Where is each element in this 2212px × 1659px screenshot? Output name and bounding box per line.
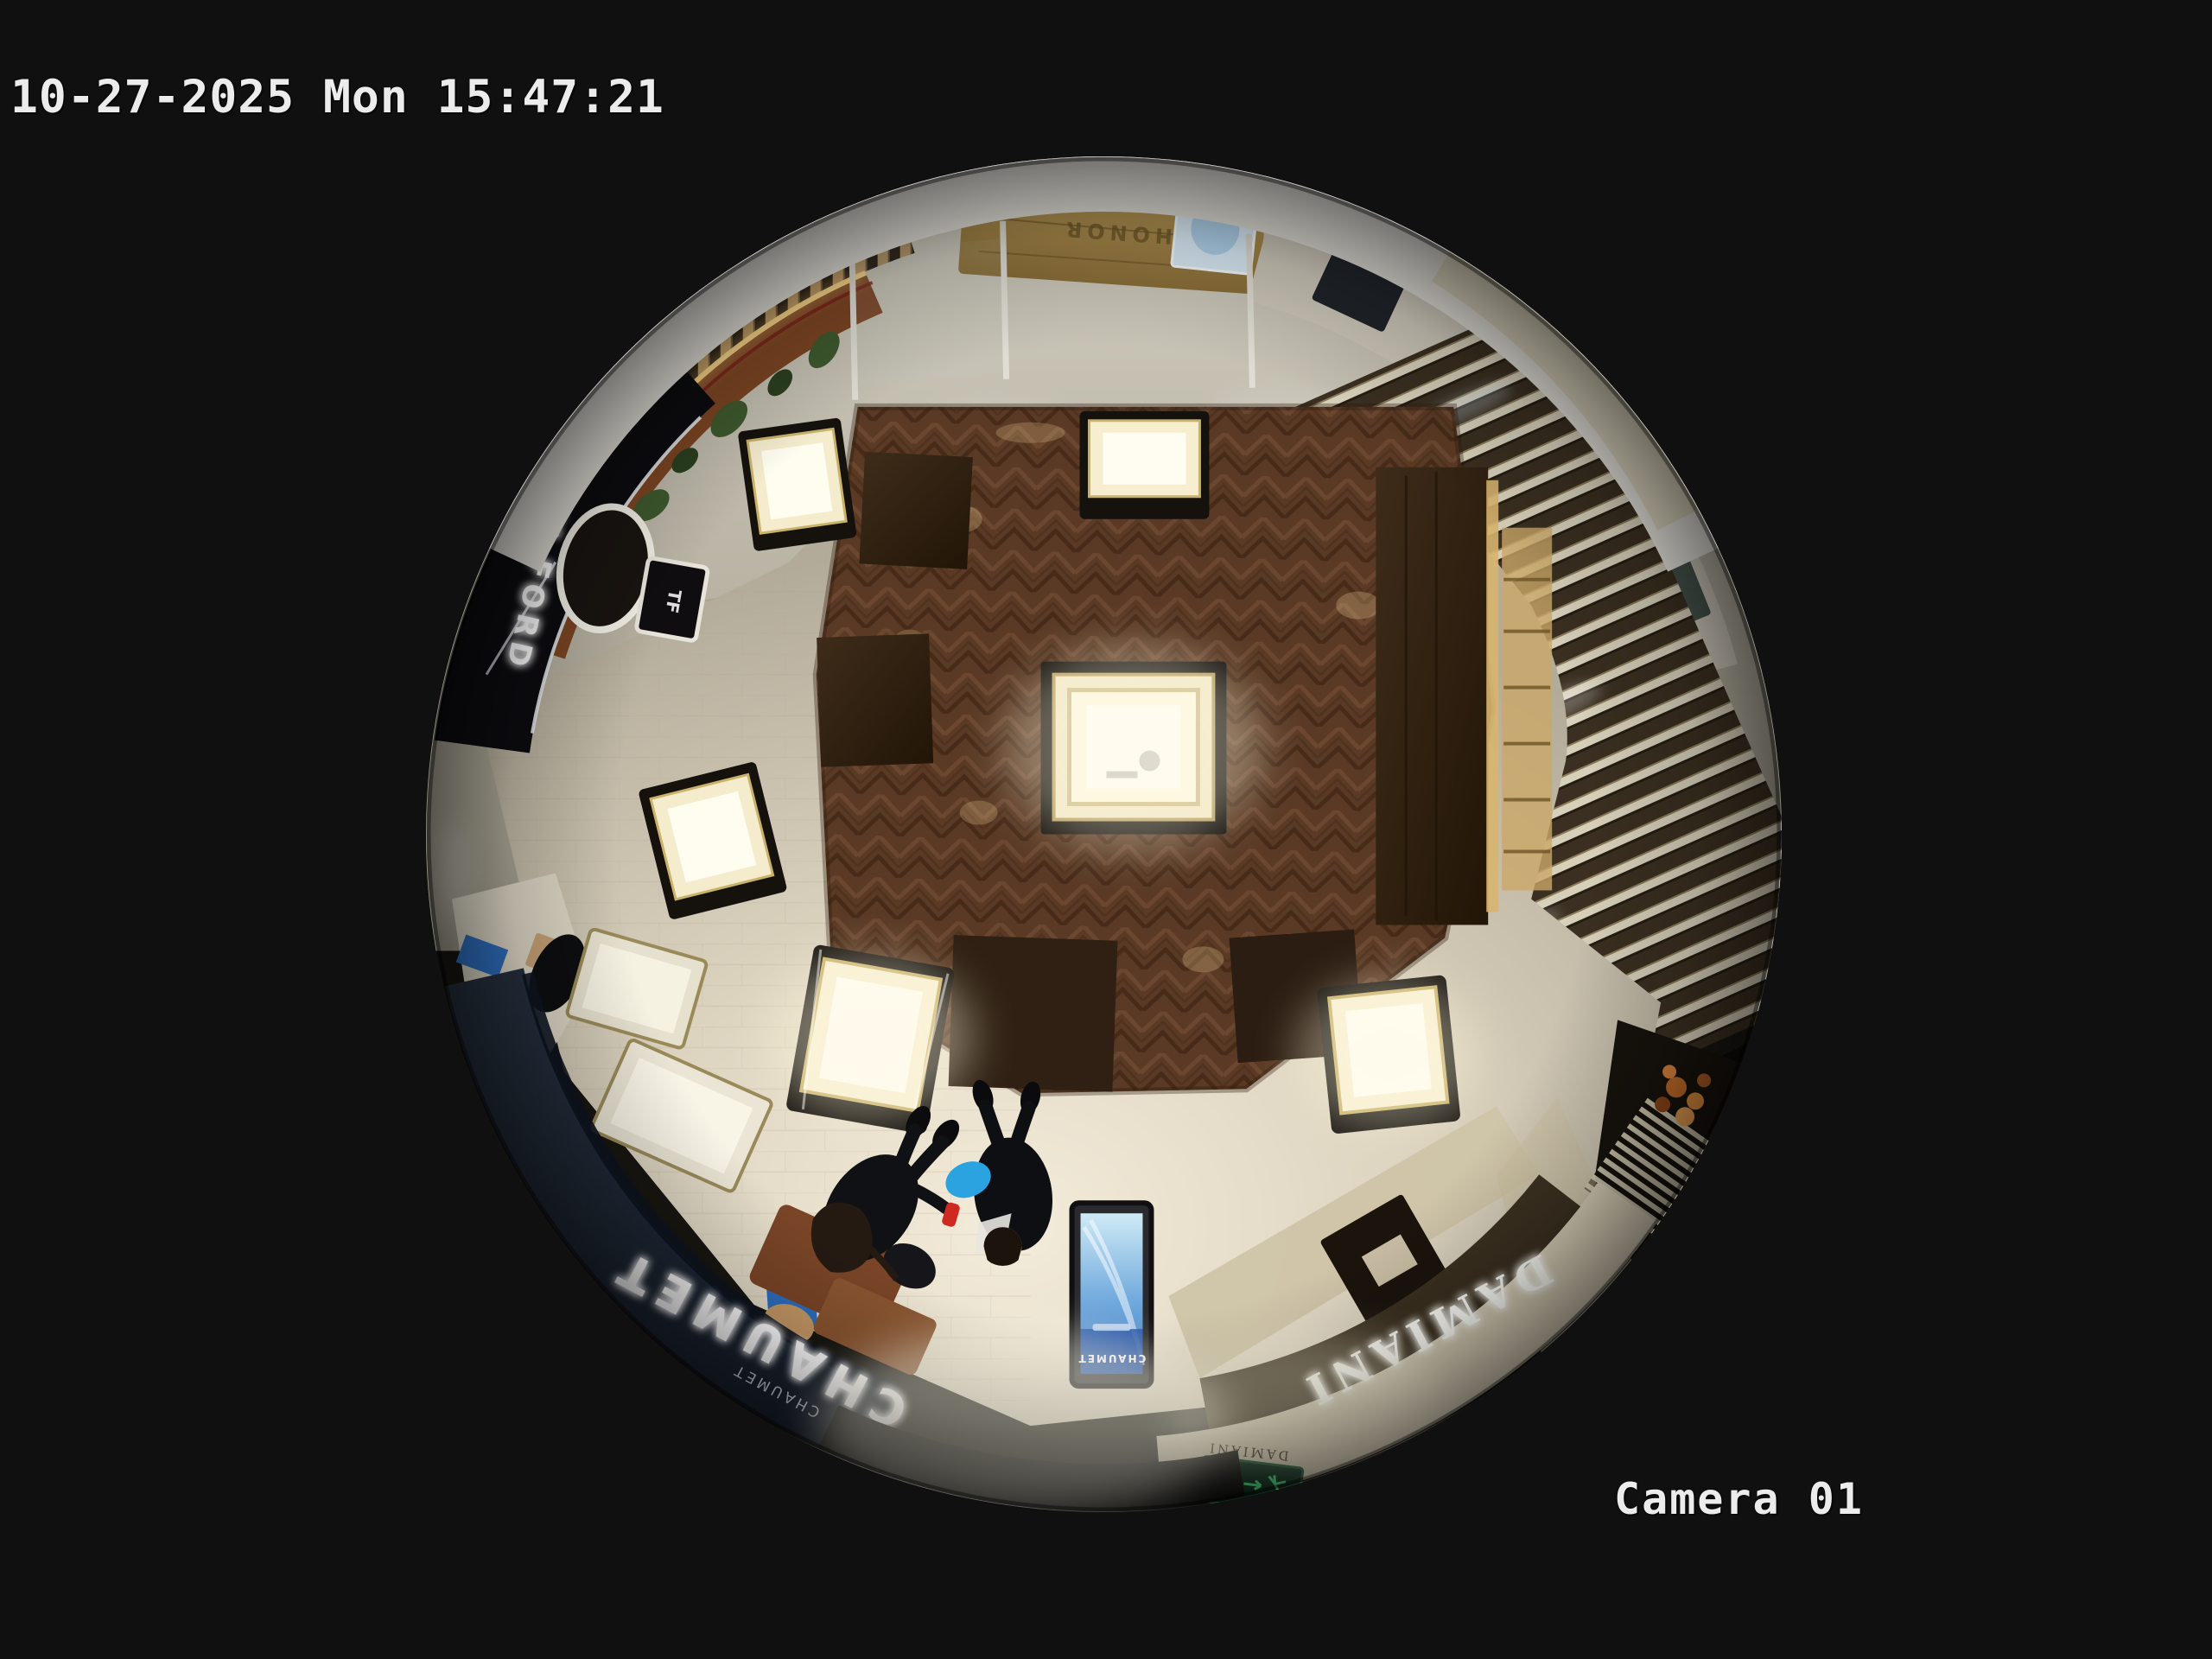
fisheye-camera-view: HONOR — [426, 156, 1782, 1512]
lens-vignette — [427, 157, 1781, 1511]
osd-timestamp: 10-27-2025 Mon 15:47:21 — [10, 71, 664, 124]
framed-art — [1687, 1164, 1779, 1263]
osd-camera-label: Camera 01 — [1614, 1474, 1864, 1524]
